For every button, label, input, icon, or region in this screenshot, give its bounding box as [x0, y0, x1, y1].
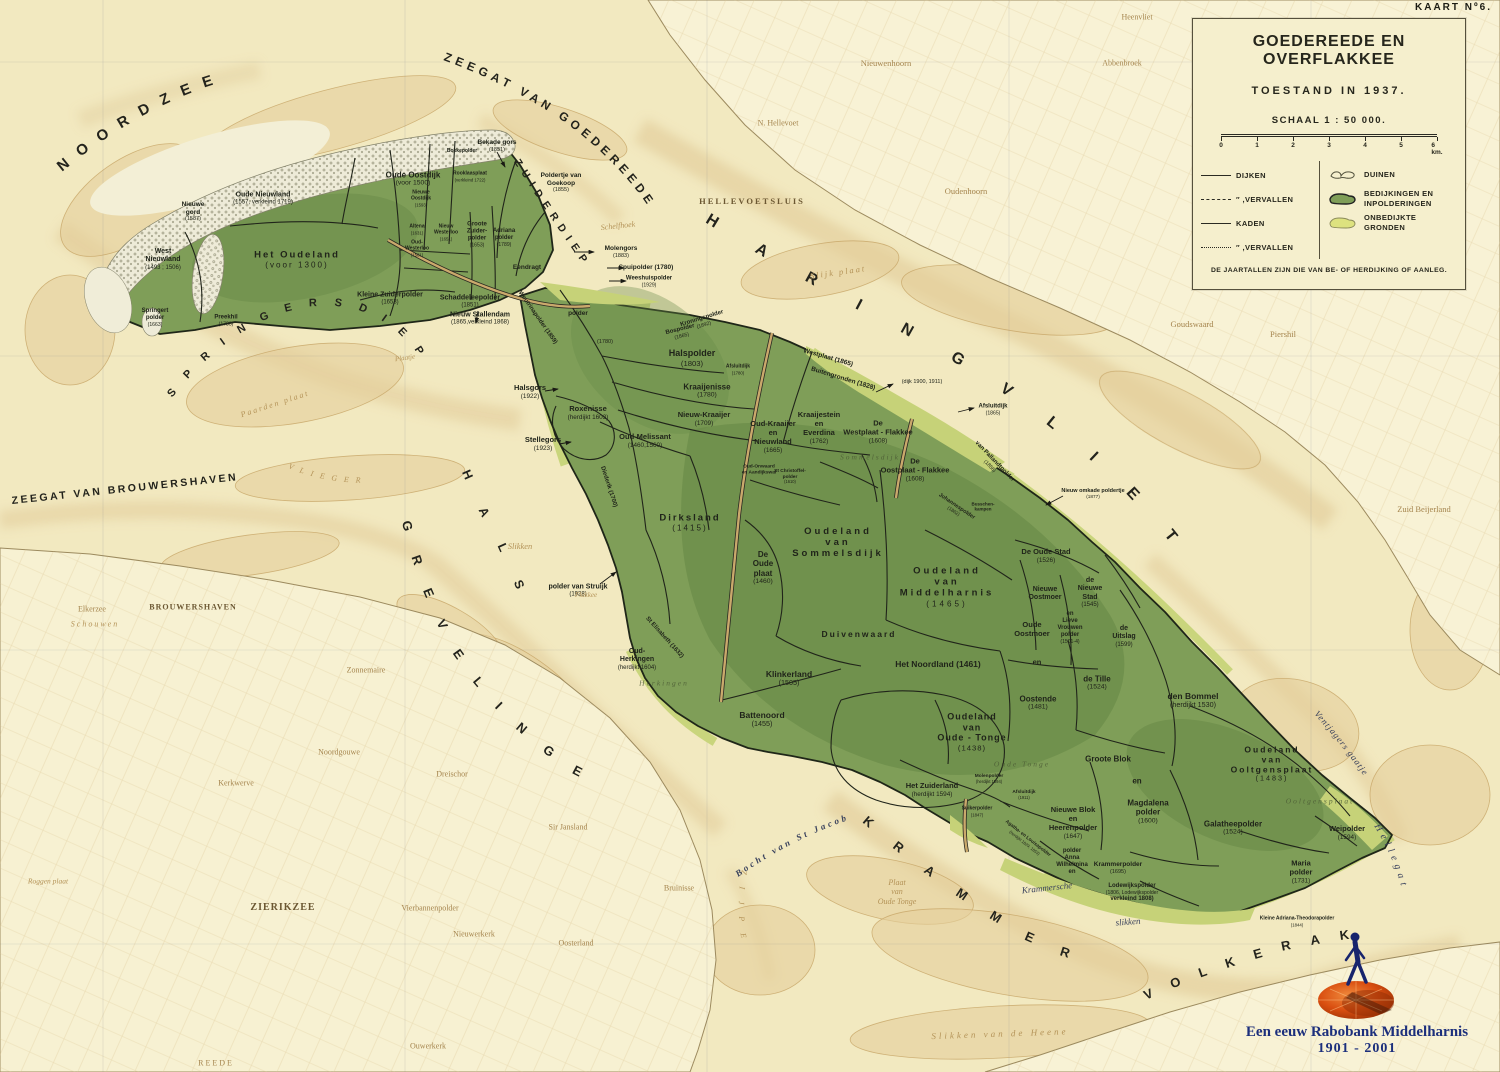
legend-item-onbedijkte: ONBEDIJKTE GRONDEN — [1328, 211, 1457, 235]
dotted-line-sample — [1201, 247, 1231, 248]
scale-tick-mark — [1293, 137, 1294, 141]
scale-tick-label: 3 — [1327, 142, 1331, 149]
legend-item-kaden-vervallen: ″ ,VERVALLEN — [1201, 235, 1319, 259]
legend-item-label: ONBEDIJKTE GRONDEN — [1364, 213, 1457, 233]
scale-tick-label: 1 — [1255, 142, 1259, 149]
scale-tick-label: 4 — [1363, 142, 1367, 149]
scale-tick-mark — [1329, 137, 1330, 141]
scale-tick-label: 5 — [1399, 142, 1403, 149]
legend-item-dijken: DIJKEN — [1201, 163, 1319, 187]
legend-item-label: ″ ,VERVALLEN — [1236, 195, 1293, 204]
legend: DIJKEN ″ ,VERVALLEN KADEN ″ ,VERVALLEN D… — [1193, 161, 1465, 259]
scale-tick-label: 0 — [1219, 142, 1223, 149]
legend-item-label: DUINEN — [1364, 170, 1395, 180]
thin-line-sample — [1201, 223, 1231, 224]
legend-item-label: DIJKEN — [1236, 171, 1266, 180]
scale-tick-mark — [1365, 137, 1366, 141]
onbedijkte-swatch-icon — [1328, 215, 1358, 231]
legend-line-styles: DIJKEN ″ ,VERVALLEN KADEN ″ ,VERVALLEN — [1201, 161, 1320, 259]
solid-line-sample — [1201, 175, 1231, 176]
map-title: GOEDEREEDE EN OVERFLAKKEE — [1193, 33, 1465, 69]
bedijkingen-swatch-icon — [1328, 191, 1358, 207]
scale-label: SCHAAL 1 : 50 000. — [1193, 115, 1465, 126]
legend-item-label: BEDIJKINGEN EN INPOLDERINGEN — [1364, 189, 1433, 209]
legend-item-label: ″ ,VERVALLEN — [1236, 243, 1293, 252]
map-sheet: NOORDZEE ZEEGAT VAN GOEDEREEDE ZUIDERDIE… — [0, 0, 1500, 1072]
legend-item-bedijkingen: BEDIJKINGEN EN INPOLDERINGEN — [1328, 187, 1457, 211]
duinen-swatch-icon — [1328, 167, 1358, 183]
map-subtitle: TOESTAND IN 1937. — [1193, 85, 1465, 97]
scale-tick-label: 2 — [1291, 142, 1295, 149]
scale-tick-mark — [1437, 137, 1438, 141]
legend-item-label: KADEN — [1236, 219, 1265, 228]
scale-tick-mark — [1257, 137, 1258, 141]
title-legend-box: GOEDEREEDE EN OVERFLAKKEE TOESTAND IN 19… — [1192, 18, 1466, 290]
sheet-number: KAART Nº6. — [1415, 2, 1492, 13]
scale-tick-mark — [1221, 137, 1222, 141]
dashed-line-sample — [1201, 199, 1231, 200]
scale-bar: 0123456 km. — [1221, 136, 1437, 151]
scale-tick-label: 6 km. — [1431, 142, 1442, 156]
legend-item-dijken-vervallen: ″ ,VERVALLEN — [1201, 187, 1319, 211]
legend-item-duinen: DUINEN — [1328, 163, 1457, 187]
legend-item-kaden: KADEN — [1201, 211, 1319, 235]
scale-tick-mark — [1401, 137, 1402, 141]
legend-area-styles: DUINEN BEDIJKINGEN EN INPOLDERINGEN ONBE… — [1320, 161, 1457, 259]
legend-note: DE JAARTALLEN ZIJN DIE VAN BE- OF HERDIJ… — [1193, 267, 1465, 274]
